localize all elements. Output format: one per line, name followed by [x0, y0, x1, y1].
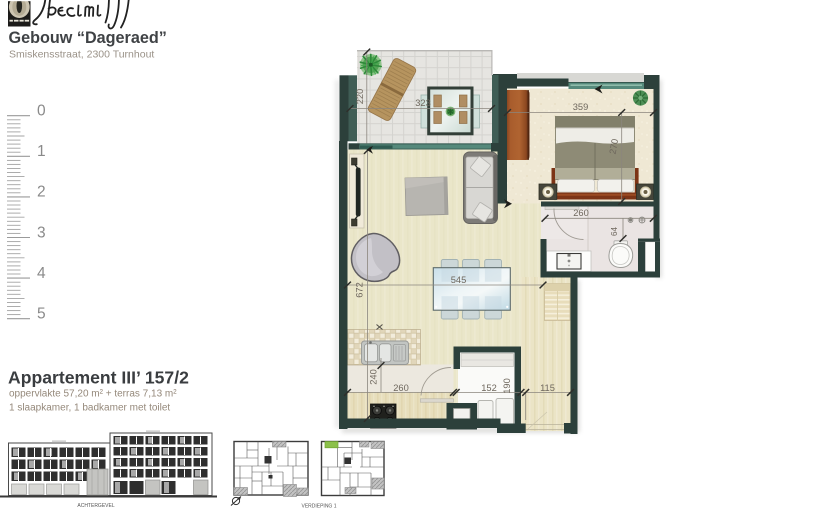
svg-text:0: 0 [37, 103, 46, 120]
svg-text:672: 672 [355, 282, 365, 298]
svg-text:190: 190 [502, 378, 512, 394]
svg-text:545: 545 [451, 275, 467, 285]
svg-text:152: 152 [481, 383, 497, 393]
svg-text:260: 260 [573, 208, 589, 218]
svg-text:323: 323 [415, 98, 431, 108]
svg-text:VERDIEPING 1: VERDIEPING 1 [301, 504, 336, 508]
svg-text:2: 2 [37, 184, 46, 201]
svg-text:359: 359 [573, 102, 589, 112]
svg-text:1 slaapkamer, 1 badkamer met t: 1 slaapkamer, 1 badkamer met toilet [9, 403, 170, 414]
svg-text:260: 260 [393, 383, 409, 393]
svg-text:Appartement III’ 157/2: Appartement III’ 157/2 [8, 368, 189, 388]
svg-text:4: 4 [37, 265, 46, 282]
svg-text:115: 115 [540, 383, 555, 393]
svg-text:Gebouw “Dageraed”: Gebouw “Dageraed” [9, 29, 167, 47]
svg-text:220: 220 [355, 89, 365, 105]
svg-text:oppervlakte 57,20 m² + terras: oppervlakte 57,20 m² + terras 7,13 m² [9, 389, 177, 400]
svg-text:Smiskensstraat, 2300 Turnhout: Smiskensstraat, 2300 Turnhout [9, 49, 154, 61]
svg-text:64: 64 [610, 227, 619, 236]
svg-text:240: 240 [369, 369, 379, 385]
svg-text:1: 1 [37, 143, 46, 160]
svg-text:5: 5 [37, 306, 46, 323]
svg-text:3: 3 [37, 224, 46, 241]
svg-text:ACHTERGEVEL: ACHTERGEVEL [77, 503, 114, 508]
